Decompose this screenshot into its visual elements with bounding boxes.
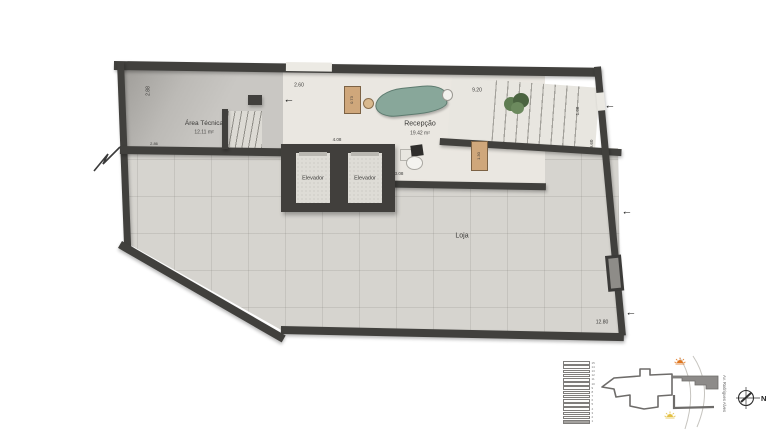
- area-tecnica-wall-stub: [248, 95, 262, 105]
- floor-box: [563, 399, 590, 403]
- area-tecnica-name: Área Técnica: [185, 121, 223, 128]
- dim-top-cabinet: 0.73: [350, 96, 354, 104]
- desk-monitor-icon: [410, 144, 423, 157]
- site-building-footprint: [672, 376, 718, 389]
- recepcao-name: Recepção: [404, 121, 436, 128]
- dim-shop-width: 12.80: [596, 321, 609, 326]
- right-door-leaf: [608, 258, 621, 289]
- north-compass: N: [736, 381, 768, 419]
- floor-plan: Elevador Elevador Área Técnica 12.11 m² …: [100, 55, 660, 350]
- sunset-icon: [675, 358, 686, 365]
- floor-box: [563, 382, 590, 386]
- dim-stair-width: 1.66: [576, 107, 581, 116]
- floor-level-indicator: 151413121110987654321: [563, 361, 595, 424]
- floor-stack-row: 1: [563, 420, 595, 424]
- elevator-left-label: Elevador: [302, 176, 324, 182]
- floor-number: 11: [592, 378, 595, 381]
- dim-reception-width: 9.20: [472, 89, 482, 94]
- site-location-map: Av. Rodrigues Alves: [600, 355, 735, 432]
- dim-corner: 2.86: [150, 142, 158, 146]
- plant-leaf: [511, 102, 524, 114]
- area-tecnica-stair-wall: [222, 109, 228, 149]
- plant-icon: [504, 93, 532, 117]
- floor-box: [563, 403, 590, 407]
- right-door: [605, 255, 624, 292]
- entry-arrow-right-upper: ←: [622, 207, 633, 218]
- floor-box: [563, 395, 590, 399]
- dim-elevator-bank: 4.08: [333, 138, 342, 143]
- break-line-icon: [92, 145, 124, 175]
- dim-side-cabinet: 1.30: [477, 152, 481, 160]
- recepcao-area: 19.42 m²: [410, 132, 430, 137]
- floor-box: [563, 374, 590, 378]
- floor-box: [563, 386, 590, 390]
- dim-left-height: 2.88: [147, 86, 152, 96]
- dim-right-wall: 9.60: [590, 140, 595, 149]
- reception-stool: [363, 98, 374, 109]
- reception-chair: [442, 89, 453, 101]
- area-tecnica-area: 12.11 m²: [194, 131, 213, 136]
- site-street-edge: [674, 395, 714, 408]
- floor-plan-page: Elevador Elevador Área Técnica 12.11 m² …: [0, 0, 768, 432]
- floor-box: [563, 365, 590, 369]
- floor-box: [563, 407, 590, 411]
- loja-name: Loja: [455, 233, 468, 240]
- site-building-outline: [602, 369, 672, 409]
- floor-box: [563, 378, 590, 382]
- desk-chair: [406, 156, 423, 170]
- floor-box: [563, 391, 590, 395]
- floor-box: [563, 416, 590, 420]
- elevator-bank: [281, 144, 395, 212]
- elevator-right-door: [351, 152, 379, 156]
- floor-box: [563, 412, 590, 416]
- dim-entrance: 2.60: [294, 84, 304, 89]
- floor-box: [563, 370, 590, 374]
- area-tecnica-staircase: [228, 111, 262, 149]
- sun-path-arc: [680, 358, 691, 429]
- floor-number: 1: [592, 420, 594, 423]
- top-entrance-opening: [286, 62, 332, 72]
- floor-box: [563, 361, 590, 365]
- sun-path-arc: [693, 356, 704, 427]
- sunrise-icon: [665, 412, 676, 419]
- current-floor-box: [563, 420, 590, 424]
- north-label: N: [761, 394, 766, 403]
- street-name-label: Av. Rodrigues Alves: [722, 375, 727, 412]
- entry-arrow-top: ←: [284, 95, 295, 106]
- dim-reception-depth: 3.08: [395, 172, 404, 177]
- entry-arrow-stair: ←: [605, 101, 616, 112]
- elevator-right-label: Elevador: [354, 176, 376, 182]
- elevator-left-door: [299, 152, 327, 156]
- entry-arrow-right-lower: ←: [626, 308, 637, 319]
